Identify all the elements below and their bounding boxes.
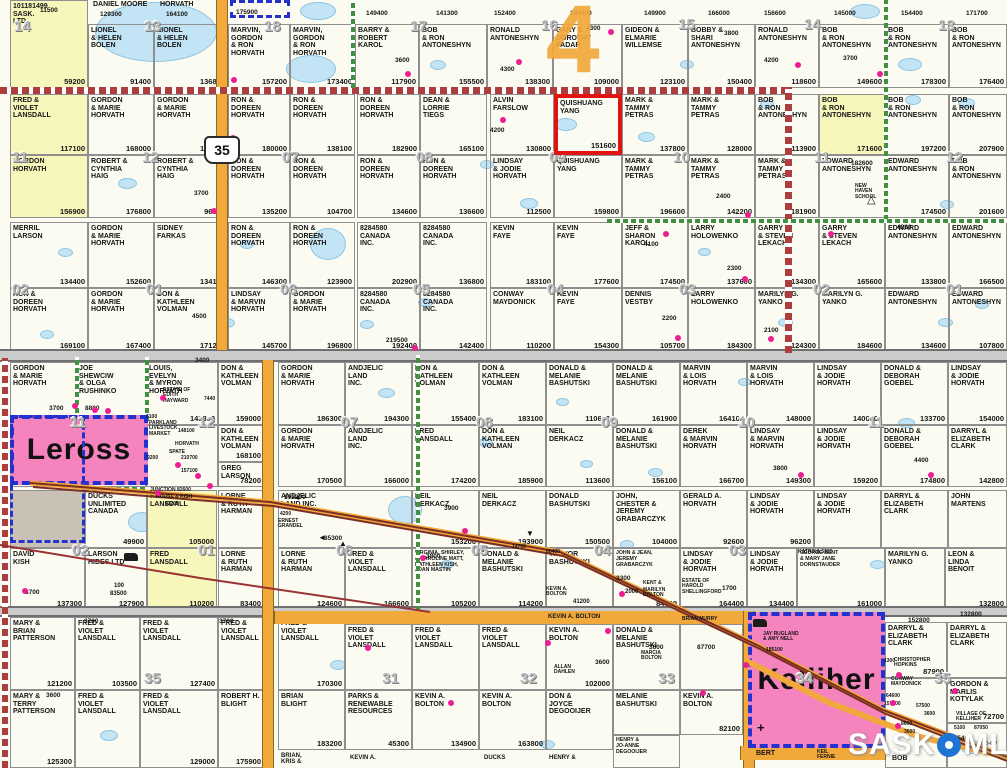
section-number: 08: [416, 149, 433, 166]
section-number: 02: [72, 542, 89, 559]
parcel[interactable]: HENRY & JO-ANNE DEGOOIJER: [613, 735, 680, 768]
orange-road: [216, 0, 228, 350]
parcel[interactable]: MARVIN & LOIS HORVATH148000: [747, 362, 814, 425]
parcel[interactable]: DONALD & MELANIE BASHUTSKI114200: [479, 548, 546, 610]
listing-marker[interactable]: [420, 555, 426, 561]
listing-marker[interactable]: [952, 688, 958, 694]
parcel[interactable]: NEIL DERKACZ193900: [479, 490, 546, 548]
map-label: 210700: [181, 456, 198, 461]
parcel[interactable]: RON & DOREEN HORVATH134600: [357, 155, 420, 218]
parcel[interactable]: MARILYN G. YANKO: [885, 548, 945, 610]
watermark-text-left: SASK: [848, 728, 935, 762]
parcel-owner: RON & DOREEN HORVATH: [291, 95, 354, 120]
parcel-owner: RON & DOREEN HORVATH: [229, 95, 289, 120]
listing-marker[interactable]: [155, 490, 161, 496]
parcel[interactable]: GORDON & MARIE HORVATH168000: [88, 94, 154, 155]
parcel-assessed-value: 170300: [317, 679, 342, 688]
section-number: 18: [264, 18, 281, 35]
section-number: 12: [946, 149, 963, 166]
parcel-owner: LINDSAY & MARVIN HORVATH: [748, 426, 813, 451]
parcel-owner: BOB & RON ANTONESHYN: [950, 95, 1006, 120]
listing-marker[interactable]: [175, 462, 181, 468]
parcel-owner: FRED & VIOLET LANSDALL: [346, 625, 411, 650]
parcel[interactable]: KEVIN A. BOLTON82100: [680, 690, 743, 735]
listing-marker[interactable]: [896, 672, 902, 678]
parcel[interactable]: GORDON & MARIE HORVATH196800: [290, 288, 355, 352]
parcel-assessed-value: 123100: [660, 77, 685, 86]
parcel[interactable]: MELANIE BASHUTSKI: [613, 690, 680, 735]
parcel[interactable]: LORNE & RUTH HARMAN83400: [218, 548, 264, 610]
listing-marker[interactable]: [545, 640, 551, 646]
parcel-assessed-value: 178300: [921, 77, 946, 86]
parcel[interactable]: DONALD & MELANIE BASHUTSKI156100: [613, 425, 680, 487]
section-number: 04: [547, 281, 564, 298]
parcel[interactable]: KEVIN FAYE177600: [554, 222, 622, 288]
parcel-assessed-value: 156900: [60, 207, 85, 216]
map-label: 64600: [886, 694, 900, 699]
listing-marker[interactable]: [500, 117, 506, 123]
parcel[interactable]: DON & JOYCE DEGOOIJER: [546, 690, 613, 750]
parcel-owner: VIRGINIA, SHIRLEY, & CAROLINE MATT, KATH…: [413, 549, 478, 574]
parcel-owner: MARK & TAMMY PETRAS: [689, 156, 754, 181]
parcel[interactable]: NEIL DERKACZ153200: [412, 490, 479, 548]
parcel-owner: [681, 625, 742, 627]
map-label: 175900: [236, 9, 258, 16]
parcel-assessed-value: 183100: [518, 414, 543, 423]
parcel[interactable]: FRED & VIOLET LANSDALL: [218, 617, 264, 690]
parcel-owner: GORDON & MARIE HORVATH: [279, 426, 344, 451]
section-number: 11: [814, 149, 830, 166]
section-number: 35: [144, 670, 161, 687]
greend-v-road: [884, 0, 888, 220]
parcel-owner: EDWARD ANTONESHYN: [886, 156, 948, 173]
parcel-assessed-value: 166000: [384, 476, 409, 485]
parcel[interactable]: BOBBY & SHARI ANTONESHYN150400: [688, 24, 755, 88]
section-number: 14: [14, 18, 31, 35]
parcel[interactable]: ALVIN FARSLOW130800: [490, 94, 554, 155]
highlighted-parcel[interactable]: QUISHUANG YANG151600: [554, 94, 622, 155]
parcel[interactable]: LINDSAY & JODIE HORVATH96200: [747, 490, 814, 548]
parcel[interactable]: KEVIN FAYE183100: [490, 222, 554, 288]
listing-marker[interactable]: [231, 77, 237, 83]
parcel[interactable]: LINDSAY & JODIE HORVATH134400: [747, 548, 797, 610]
parcel-owner: 8284580 CANADA INC.: [358, 289, 419, 314]
parcel[interactable]: DON & KATHLEEN VOLMAN185900: [479, 425, 546, 487]
parcel[interactable]: DUCKS UNLIMITED CANADA49900: [85, 490, 147, 548]
map-label: 171700: [966, 10, 988, 17]
parcel-owner: DARRYL & ELIZABETH CLARK: [882, 491, 947, 516]
map-label: ALLAN DAHLEN: [554, 665, 575, 676]
section-number: 35: [934, 670, 951, 687]
parcel-assessed-value: 176400: [979, 77, 1004, 86]
parcel[interactable]: DONALD & MELANIE BASHUTSKI161900: [613, 362, 680, 425]
parcel[interactable]: [680, 624, 743, 690]
map-label: 8600: [901, 722, 912, 727]
parcel[interactable]: MERRIL LARSON134400: [10, 222, 88, 288]
parcel[interactable]: LINDSAY & JODIE HORVATH: [814, 490, 881, 548]
listing-marker[interactable]: [675, 335, 681, 341]
parcel[interactable]: MARY & TERRY PATTERSON125300: [10, 690, 75, 768]
section-number: 12: [142, 149, 159, 166]
parcel-owner: MELANIE BASHUTSKI: [614, 691, 679, 708]
map-label: 2200: [662, 315, 676, 322]
watermark-text-right: MLS: [963, 728, 1007, 762]
parcel-assessed-value: 182900: [392, 144, 417, 153]
parcel-assessed-value: 165100: [459, 144, 484, 153]
parcel[interactable]: BOB & RON ANTONESHYN207900: [949, 94, 1007, 155]
map-label: 148100: [178, 429, 195, 434]
parcel[interactable]: BOB & RON ANTONESHYN197200: [885, 94, 949, 155]
map-label: HORVATH: [160, 1, 193, 9]
section-number: 06: [280, 281, 297, 298]
parcel[interactable]: RON & DOREEN HORVATH135200: [228, 155, 290, 218]
listing-marker[interactable]: [663, 231, 669, 237]
parcel[interactable]: RON & DOREEN HORVATH104700: [290, 155, 355, 218]
section-number: 11: [12, 149, 28, 166]
section-number: 01: [198, 542, 215, 559]
parcel[interactable]: GORDON & MARIE HORVATH186300: [278, 362, 345, 425]
parcel-owner: BOB & RON ANTONESHYN: [820, 95, 884, 120]
water-body: [300, 2, 336, 20]
section-number: 32: [520, 670, 537, 687]
parcel-assessed-value: 150400: [727, 77, 752, 86]
parcel-assessed-value: 151600: [591, 141, 616, 150]
parcel-assessed-value: 125300: [47, 757, 72, 766]
map-canvas[interactable]: SASK MLS 101181499 SASK. LTD.59200LIONEL…: [0, 0, 1007, 768]
map-label: HORVATH: [175, 442, 199, 447]
parcel[interactable]: MARVIN & LOIS HORVATH164100: [680, 362, 747, 425]
listing-marker[interactable]: [828, 231, 834, 237]
parcel-assessed-value: 134400: [60, 277, 85, 286]
parcel-owner: BOBBY & SHARI ANTONESHYN: [689, 25, 754, 50]
parcel[interactable]: FRED & VIOLET LANSDALL: [75, 690, 140, 768]
parcel-owner: DONALD & DEBORAH GOEBEL: [882, 363, 947, 388]
parcel-owner: RON & DOREEN HORVATH: [358, 95, 419, 120]
parcel-owner: CONWAY MAYDONICK: [491, 289, 553, 306]
parcel[interactable]: 8284580 CANADA INC.136800: [420, 222, 487, 288]
parcel[interactable]: GIDEON & ELMARIE WILLEMSE123100: [622, 24, 688, 88]
parcel[interactable]: DARRYL & ELIZABETH CLARK: [881, 490, 948, 548]
map-label: 4200: [897, 224, 911, 231]
map-label: 219500: [386, 337, 408, 344]
map-label: 3600: [46, 692, 60, 699]
listing-marker[interactable]: [92, 407, 98, 413]
listing-marker[interactable]: [412, 345, 418, 351]
parcel-assessed-value: 142800: [979, 476, 1004, 485]
listing-marker[interactable]: [365, 645, 371, 651]
parcel[interactable]: KEVIN A. BOLTON163800: [479, 690, 546, 750]
parcel[interactable]: EDWARD ANTONESHYN174500: [885, 155, 949, 218]
parcel[interactable]: LEON & LINDA BENOIT132800: [945, 548, 1007, 610]
map-label: BRIAN, KRIS &: [281, 753, 302, 766]
parcel[interactable]: RON & DOREEN HORVATH182900: [357, 94, 420, 155]
parcel[interactable]: FRED & VIOLET LANSDALL166600: [345, 548, 412, 610]
parcel[interactable]: KEVIN A. BOLTON102000: [546, 624, 613, 690]
parcel-owner: MARILYN G. YANKO: [886, 549, 944, 566]
map-label: ◄: [318, 534, 326, 543]
map-label: 83500: [110, 591, 127, 597]
parcel-assessed-value: 59200: [64, 77, 85, 86]
parcel[interactable]: CONWAY MAYDONICK110200: [490, 288, 554, 352]
parcel[interactable]: GORDON & MARIE HORVATH152600: [88, 222, 154, 288]
section-number: 13: [938, 17, 955, 34]
parcel-owner: MARY & BRIAN PATTERSON: [11, 618, 74, 643]
parcel[interactable]: LARRY HOLOWENKO184300: [688, 288, 755, 352]
map-label: 3600: [649, 644, 663, 651]
parcel[interactable]: DARRYL & ELIZABETH CLARK: [947, 622, 1007, 678]
parcel[interactable]: ANDJELIC LAND INC.166000: [345, 425, 412, 487]
truck-icon: [753, 619, 767, 627]
listing-marker[interactable]: [105, 408, 111, 414]
parcel-owner: DON & KATHLEEN VOLMAN: [480, 363, 545, 388]
parcel[interactable]: ROBERT H. BLIGHT175900: [218, 690, 264, 768]
parcel-owner: DON & KATHLEEN VOLMAN: [219, 363, 263, 388]
parcel-assessed-value: 161900: [652, 414, 677, 423]
map-label: MARCIA BOLTON: [641, 651, 662, 662]
listing-marker[interactable]: [768, 336, 774, 342]
parcel[interactable]: BOB & RON ANTONESHYN176400: [949, 24, 1007, 88]
parcel[interactable]: GERALD A. HORVATH92600: [680, 490, 747, 548]
parcel[interactable]: GREG LARSON78200: [218, 462, 264, 487]
listing-marker[interactable]: [211, 208, 217, 214]
truck-icon: [124, 553, 138, 561]
map-label: 3600: [595, 659, 609, 666]
parcel[interactable]: MARK & TAMMY PETRAS137800: [622, 94, 688, 155]
parcel-owner: DONALD & MELANIE BASHUTSKI: [614, 625, 679, 650]
parcel[interactable]: EDWARD ANTONESHYN166500: [949, 222, 1007, 288]
listing-marker[interactable]: [608, 29, 614, 35]
listing-marker[interactable]: [605, 628, 611, 634]
map-label: 4500: [192, 313, 206, 320]
parcel-owner: FRED & VIOLET LANSDALL: [11, 95, 87, 120]
parcel[interactable]: EDWARD ANTONESHYN133800: [885, 222, 949, 288]
listing-marker[interactable]: [745, 212, 751, 218]
parcel-owner: LINDSAY & JODIE HORVATH: [949, 363, 1006, 388]
parcel-owner: DARRYL & ELIZABETH CLARK: [886, 623, 946, 648]
parcel-assessed-value: 102000: [585, 679, 610, 688]
parcel[interactable]: DEAN & LORRIE TIEGS165100: [420, 94, 487, 155]
parcel[interactable]: KEVIN A. BOLTON134900: [412, 690, 479, 750]
parcel-owner: RON & DOREEN HORVATH: [229, 223, 289, 248]
map-label: KENT &: [643, 581, 662, 586]
parcel-owner: GORDON & MARIE HORVATH: [89, 289, 153, 314]
parcel-owner: MARK & TAMMY PETRAS: [689, 95, 754, 120]
parcel-owner: DARRYL & ELIZABETH CLARK: [949, 426, 1006, 451]
parcel-assessed-value: 165600: [857, 277, 882, 286]
parcel[interactable]: LINDSAY & JODIE HORVATH159200: [814, 425, 881, 487]
parcel[interactable]: FRED & VIOLET LANSDALL103500: [75, 617, 140, 690]
parcel[interactable]: RON & DOREEN HORVATH123900: [290, 222, 355, 288]
parcel-assessed-value: 186300: [317, 414, 342, 423]
parcel-owner: DONALD BASHUTSKI: [547, 491, 612, 508]
parcel-assessed-value: 91400: [130, 77, 151, 86]
parcel[interactable]: GORDON & MARIE HORVATH167400: [88, 288, 154, 352]
map-label: 87700: [697, 644, 715, 651]
parcel[interactable]: GORDON & MARIE HORVATH170500: [278, 425, 345, 487]
listing-marker[interactable]: [619, 591, 625, 597]
parcel[interactable]: BOB & RON ANTONESHYN155500: [419, 24, 487, 88]
parcel-assessed-value: 134900: [451, 739, 476, 748]
map-label: 3600: [924, 712, 935, 717]
church-cross-icon: +: [757, 721, 765, 734]
listing-marker[interactable]: [72, 403, 78, 409]
parcel[interactable]: JEFF & SHARON KAROL174500: [622, 222, 688, 288]
parcel-owner: RON & DOREEN HORVATH: [291, 223, 354, 248]
map-label: 164100: [166, 11, 188, 18]
listing-marker[interactable]: [742, 276, 748, 282]
listing-marker[interactable]: [160, 395, 166, 401]
parcel-owner: DENNIS VESTBY: [623, 289, 687, 306]
parcel-owner: LORNE & RUTH HARMAN: [219, 491, 263, 516]
map-label: 4200: [764, 57, 778, 64]
map-label: 141300: [436, 10, 458, 17]
highway-4-marker-icon: 4: [546, 0, 599, 88]
parcel-owner: ALVIN FARSLOW: [491, 95, 553, 112]
parcel[interactable]: EDWARD ANTONESHYN134600: [885, 288, 949, 352]
listing-marker[interactable]: [462, 528, 468, 534]
redd-v-road: [2, 358, 8, 768]
parcel-assessed-value: 163800: [518, 739, 543, 748]
map-label: KEVIN A. BOLTON: [548, 614, 600, 620]
parcel[interactable]: LINDSAY & JODIE HORVATH112500: [490, 155, 554, 218]
parcel-owner: BOB & RON ANTONESHYN: [886, 95, 948, 120]
parcel[interactable]: FRED & VIOLET LANSDALL170300: [278, 617, 345, 690]
parcel[interactable]: MARY & BRIAN PATTERSON121200: [10, 617, 75, 690]
map-label: 87200: [165, 502, 179, 507]
parcel-assessed-value: 136800: [459, 277, 484, 286]
parcel[interactable]: FRED & VIOLET LANSDALL: [345, 624, 412, 690]
parcel[interactable]: MARK & TAMMY PETRAS128000: [688, 94, 755, 155]
parcel[interactable]: DONALD & DEBORAH GOEBEL133700: [881, 362, 948, 425]
parcel-owner: MARVIN, GORDON & RON HORVATH: [291, 25, 354, 57]
map-label: 166000: [708, 10, 730, 17]
section-number: 10: [738, 414, 755, 431]
parcel[interactable]: BRIAN BLIGHT183200: [278, 690, 345, 750]
parcel[interactable]: PARKS & RENEWABLE RESOURCES45300: [345, 690, 412, 750]
parcel[interactable]: MARVIN, GORDON & RON HORVATH173400: [290, 24, 355, 88]
parcel[interactable]: FRED & VIOLET LANSDALL117100: [10, 94, 88, 155]
map-label: 129300: [100, 11, 122, 18]
parcel-owner: BOB & RON ANTONESHYN: [820, 25, 884, 50]
parcel[interactable]: DONALD & DEBORAH GOEBEL174800: [881, 425, 948, 487]
listing-marker[interactable]: [195, 473, 201, 479]
parcel[interactable]: DON & KATHLEEN VOLMAN159000: [218, 362, 264, 425]
map-label: 145000: [834, 10, 856, 17]
parcel-assessed-value: 155400: [451, 414, 476, 423]
parcel[interactable]: JOHN, CHESTER & JEREMY GRABARCZYK104000: [613, 490, 680, 548]
listing-marker[interactable]: [795, 62, 801, 68]
parcel-owner: BARRY & ROBERT KAROL: [356, 25, 418, 50]
parcel-assessed-value: 123900: [327, 277, 352, 286]
parcel-owner: MARY & TERRY PATTERSON: [11, 691, 74, 716]
map-label: KEVIN A. BOLTON: [546, 587, 567, 598]
parcel[interactable]: 8284580 CANADA INC.202900: [357, 222, 420, 288]
parcel[interactable]: NEIL DERKACZ113600: [546, 425, 613, 487]
map-label: ESTATE OF EDITH HAYWARD: [163, 388, 190, 404]
parcel[interactable]: DON & KATHLEEN VOLMAN155400: [412, 362, 479, 425]
parcel[interactable]: LINDSAY & JODIE HORVATH154000: [948, 362, 1007, 425]
parcel[interactable]: BOB & RON ANTONESHYN171600: [819, 94, 885, 155]
listing-marker[interactable]: [405, 71, 411, 77]
parcel[interactable]: 8284580 CANADA INC.142400: [420, 288, 487, 352]
listing-marker[interactable]: [448, 700, 454, 706]
parcel[interactable]: KEVIN FAYE154300: [554, 288, 622, 352]
parcel[interactable]: RON & DOREEN HORVATH138100: [290, 94, 355, 155]
parcel-assessed-value: 133700: [920, 414, 945, 423]
map-label: 3400: [195, 357, 209, 364]
parcel[interactable]: RON & DOREEN HORVATH146300: [228, 222, 290, 288]
parcel[interactable]: DEREK & MARVIN HORVATH166700: [680, 425, 747, 487]
map-label: BRIAN MURRY: [682, 617, 717, 622]
parcel[interactable]: FRED & VIOLET LANSDALL129000: [140, 690, 218, 768]
parcel-owner: FRED & VIOLET LANSDALL: [413, 625, 478, 650]
parcel-assessed-value: 174500: [921, 207, 946, 216]
map-label: 1700: [722, 585, 736, 592]
listing-marker[interactable]: [22, 588, 28, 594]
parcel[interactable]: LORNE & RUTH HARMAN124600: [278, 548, 345, 610]
parcel-owner: EDWARD ANTONESHYN: [886, 289, 948, 306]
parcel-assessed-value: 135200: [262, 207, 287, 216]
parcel-owner: LINDSAY & JODIE HORVATH: [491, 156, 553, 181]
parcel-assessed-value: 49900: [123, 537, 144, 546]
parcel[interactable]: DON & KATHLEEN VOLMAN168100: [218, 425, 264, 462]
listing-marker[interactable]: [207, 483, 213, 489]
parcel-owner: DON & KATHLEEN VOLMAN: [219, 426, 263, 451]
parcel-assessed-value: 176800: [126, 207, 151, 216]
parcel-assessed-value: 148000: [786, 414, 811, 423]
parcel-owner: RON & DOREEN HORVATH: [358, 156, 419, 181]
parcel[interactable]: MARK & TAMMY PETRAS142200: [688, 155, 755, 218]
parcel-owner: GORDON & MARIE HORVATH: [89, 95, 153, 120]
parcel[interactable]: LINDSAY & MARVIN HORVATH149300: [747, 425, 814, 487]
parcel-assessed-value: 174200: [451, 476, 476, 485]
parcel-owner: DARRYL & ELIZABETH CLARK: [948, 623, 1006, 648]
greend-h-road: [607, 219, 1007, 223]
parcel-assessed-value: 207900: [979, 144, 1004, 153]
listing-marker[interactable]: [516, 59, 522, 65]
parcel-assessed-value: 96200: [790, 537, 811, 546]
map-label: 2100: [764, 327, 778, 334]
parcel-assessed-value: 45300: [388, 739, 409, 748]
parcel[interactable]: FRED & VIOLET LANSDALL: [412, 624, 479, 690]
listing-marker[interactable]: [877, 71, 883, 77]
map-label: 3800: [426, 553, 440, 560]
listing-marker[interactable]: [743, 662, 749, 668]
map-label: KEVIN A.: [350, 755, 376, 761]
parcel[interactable]: LORNE & RUTH HARMAN: [218, 490, 264, 548]
parcel[interactable]: DONALD BASHUTSKI150500: [546, 490, 613, 548]
parcel[interactable]: GEORGE BENT & MARY JANE DORNSTAUDER16100…: [797, 548, 885, 610]
parcel-assessed-value: 166700: [719, 476, 744, 485]
parcel-assessed-value: 127400: [190, 679, 215, 688]
map-label: 3900: [444, 505, 458, 512]
parcel[interactable]: DARRYL & ELIZABETH CLARK142800: [948, 425, 1007, 487]
parcel-owner: DEREK & MARVIN HORVATH: [681, 426, 746, 451]
map-label: 60400: [546, 550, 560, 555]
listing-marker[interactable]: [700, 690, 706, 696]
listing-marker[interactable]: [798, 472, 804, 478]
listing-marker[interactable]: [890, 700, 896, 706]
parcel[interactable]: FRED LANSDALL174200: [412, 425, 479, 487]
parcel[interactable]: JOHN MARTENS: [948, 490, 1007, 548]
map-label: ▲: [339, 540, 347, 549]
map-label: 149900: [644, 10, 666, 17]
parcel-owner: KEVIN FAYE: [491, 223, 553, 240]
listing-marker[interactable]: [928, 472, 934, 478]
parcel[interactable]: RONALD ANTONESHYN118600: [755, 24, 819, 88]
map-label: 2400: [716, 193, 730, 200]
greend-v-road: [351, 0, 355, 88]
